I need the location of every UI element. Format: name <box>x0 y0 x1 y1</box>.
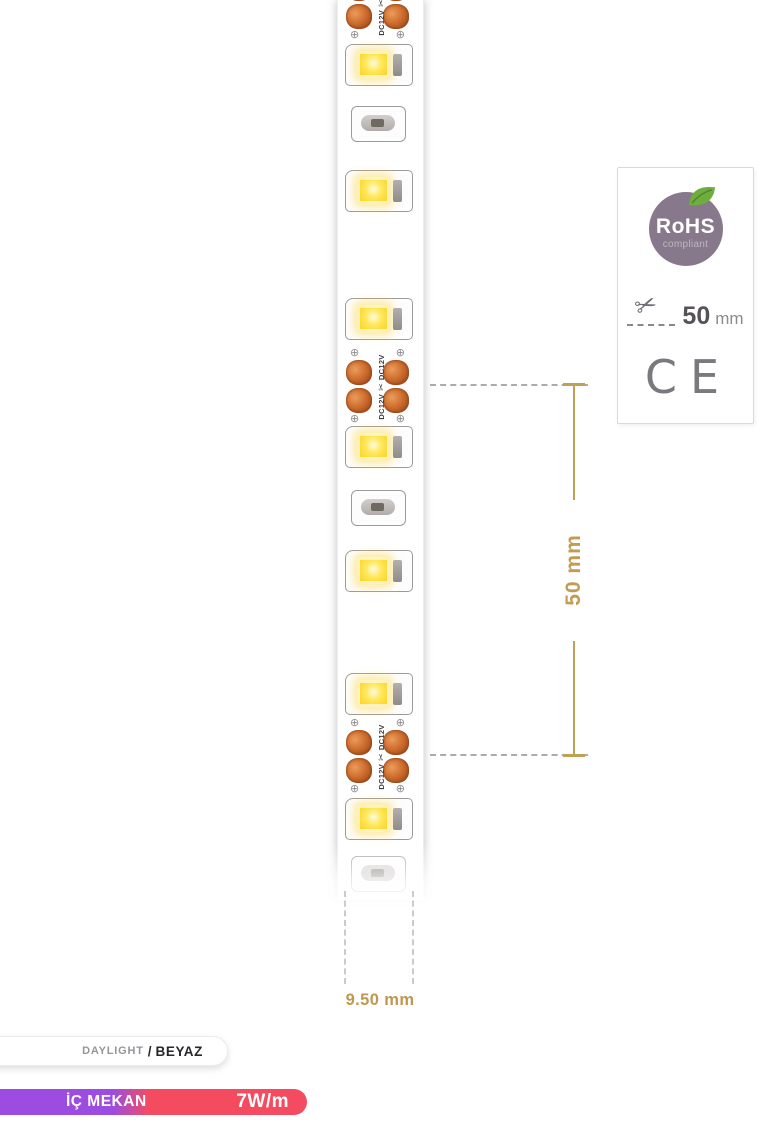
usage-power-bar: İÇ MEKAN 7W/m <box>0 1089 307 1115</box>
color-name-tr: BEYAZ <box>155 1044 203 1059</box>
scissors-icon: ✂ <box>631 287 662 324</box>
strip-fade-overlay <box>313 843 447 923</box>
led-strip: ⊕ ⊕ DC12V ✂ DC12V ⊕ <box>337 0 424 900</box>
screw-icon: ⊕ <box>350 718 359 730</box>
cut-length-unit: mm <box>715 310 743 329</box>
led-module <box>345 550 413 592</box>
solder-pad <box>346 730 372 755</box>
solder-pad <box>346 360 372 385</box>
led-module <box>345 673 413 715</box>
screw-marks: ⊕ ⊕ <box>338 30 423 42</box>
screw-icon: ⊕ <box>396 348 405 360</box>
solder-pad-column <box>346 360 372 414</box>
rohs-badge: RoHS compliant <box>649 192 723 266</box>
led-contact <box>393 436 402 458</box>
product-diagram: ⊕ ⊕ DC12V ✂ DC12V ⊕ <box>0 0 758 1140</box>
rohs-title: RoHS <box>656 216 715 237</box>
led-contact <box>393 180 402 202</box>
led-contact <box>393 683 402 705</box>
rohs-subtitle: compliant <box>663 239 709 250</box>
screw-icon: ⊕ <box>396 784 405 796</box>
screw-icon: ⊕ <box>350 784 359 796</box>
resistor-marking <box>371 503 384 511</box>
led-module <box>345 798 413 840</box>
cut-point: ⊕ ⊕ DC12V ✂ DC12V ⊕ <box>338 348 423 426</box>
width-extension-line <box>412 891 414 984</box>
cut-marking: DC12V ✂ DC12V <box>375 354 387 420</box>
led-chip <box>357 433 390 460</box>
strip-width-label: 9.50 mm <box>333 991 427 1010</box>
usage-label: İÇ MEKAN <box>66 1093 147 1111</box>
solder-pad-zone: DC12V ✂ DC12V <box>338 0 423 30</box>
led-chip <box>357 177 390 204</box>
led-contact <box>393 54 402 76</box>
scissors-icon: ✂ <box>375 753 386 761</box>
led-module <box>345 298 413 340</box>
resistor-marking <box>371 119 384 127</box>
led-chip <box>357 305 390 332</box>
color-label-pill: DAYLIGHT / BEYAZ <box>0 1036 228 1066</box>
solder-pad-column <box>346 0 372 30</box>
led-module <box>345 44 413 86</box>
ce-mark: CE <box>639 354 732 400</box>
solder-pad <box>346 758 372 783</box>
screw-marks: ⊕ ⊕ <box>338 414 423 426</box>
screw-icon: ⊕ <box>396 718 405 730</box>
color-name-en: DAYLIGHT <box>82 1045 144 1057</box>
leaf-icon <box>684 181 718 211</box>
cut-length-label: 50 mm <box>514 510 634 630</box>
cut-length-spec: ✂ 50 mm <box>627 293 743 329</box>
resistor-body <box>361 115 395 131</box>
scissors-icon: ✂ <box>375 0 386 7</box>
dc-voltage-label: DC12V <box>376 724 385 750</box>
led-contact <box>393 808 402 830</box>
scissors-cut-icon: ✂ <box>627 293 677 329</box>
led-chip <box>357 680 390 707</box>
width-extension-line <box>344 891 346 984</box>
led-chip <box>357 557 390 584</box>
scissors-icon: ✂ <box>375 383 386 391</box>
certification-box: RoHS compliant ✂ 50 mm CE <box>617 167 754 424</box>
cut-dash-line <box>627 324 675 326</box>
resistor <box>351 106 406 142</box>
solder-pad-zone: DC12V ✂ DC12V <box>338 360 423 414</box>
led-chip <box>357 805 390 832</box>
dimension-cap <box>563 754 585 757</box>
resistor-body <box>361 499 395 515</box>
led-contact <box>393 560 402 582</box>
led-chip <box>357 51 390 78</box>
screw-icon: ⊕ <box>350 414 359 426</box>
led-module <box>345 170 413 212</box>
dimension-line <box>573 641 575 755</box>
screw-marks: ⊕ ⊕ <box>338 784 423 796</box>
power-label: 7W/m <box>236 1091 289 1113</box>
cut-length-value: 50 <box>682 304 710 329</box>
solder-pad-column <box>346 730 372 784</box>
cut-marking: DC12V ✂ DC12V <box>375 724 387 790</box>
resistor <box>351 490 406 526</box>
solder-pad <box>346 388 372 413</box>
led-module <box>345 426 413 468</box>
dimension-line <box>573 386 575 500</box>
solder-pad <box>346 0 372 1</box>
cut-point: ⊕ ⊕ DC12V ✂ DC12V ⊕ <box>338 718 423 796</box>
solder-pad <box>346 4 372 29</box>
screw-icon: ⊕ <box>350 30 359 42</box>
led-contact <box>393 308 402 330</box>
screw-icon: ⊕ <box>396 414 405 426</box>
screw-icon: ⊕ <box>350 348 359 360</box>
cut-point: ⊕ ⊕ DC12V ✂ DC12V ⊕ <box>338 0 423 42</box>
dc-voltage-label: DC12V <box>376 354 385 380</box>
solder-pad-zone: DC12V ✂ DC12V <box>338 730 423 784</box>
color-name-separator: / <box>148 1044 152 1059</box>
screw-icon: ⊕ <box>396 30 405 42</box>
